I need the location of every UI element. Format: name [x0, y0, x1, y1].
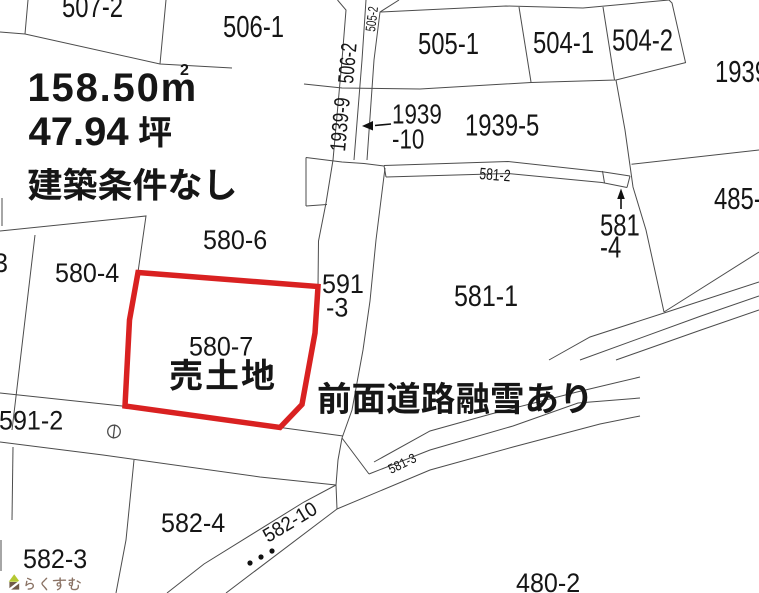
svg-text:582-4: 582-4: [161, 507, 225, 538]
svg-text:581-1: 581-1: [454, 279, 518, 312]
svg-text:1939-9: 1939-9: [326, 96, 355, 152]
svg-text:580-6: 580-6: [203, 224, 267, 255]
svg-text:582-10: 582-10: [259, 498, 321, 548]
svg-text:1939-5: 1939-5: [465, 107, 539, 142]
svg-text:581-3: 581-3: [386, 450, 419, 476]
svg-text:505-1: 505-1: [418, 26, 479, 61]
svg-text:580-4: 580-4: [55, 257, 119, 288]
svg-text:485-: 485-: [714, 181, 759, 216]
svg-text:506-2: 506-2: [335, 42, 363, 84]
svg-text:47.94: 47.94: [29, 110, 130, 154]
svg-text:505-2: 505-2: [362, 5, 381, 32]
svg-text:-3: -3: [326, 292, 348, 323]
svg-text:1939: 1939: [715, 54, 759, 89]
svg-text:506-1: 506-1: [223, 9, 284, 44]
svg-text:2: 2: [180, 62, 189, 79]
svg-text:504-1: 504-1: [533, 25, 594, 60]
svg-text:582-3: 582-3: [23, 543, 87, 574]
svg-text:591-2: 591-2: [0, 405, 63, 436]
svg-text:158.50m: 158.50m: [28, 66, 199, 110]
svg-text:580-7: 580-7: [189, 331, 253, 362]
svg-text:3: 3: [0, 247, 8, 278]
svg-text:480-2: 480-2: [516, 567, 580, 593]
svg-text:581-2: 581-2: [479, 165, 512, 186]
svg-text:507-2: 507-2: [62, 0, 123, 24]
svg-text:504-2: 504-2: [612, 22, 673, 57]
svg-text:-4: -4: [600, 229, 621, 264]
svg-text:-10: -10: [392, 124, 424, 155]
